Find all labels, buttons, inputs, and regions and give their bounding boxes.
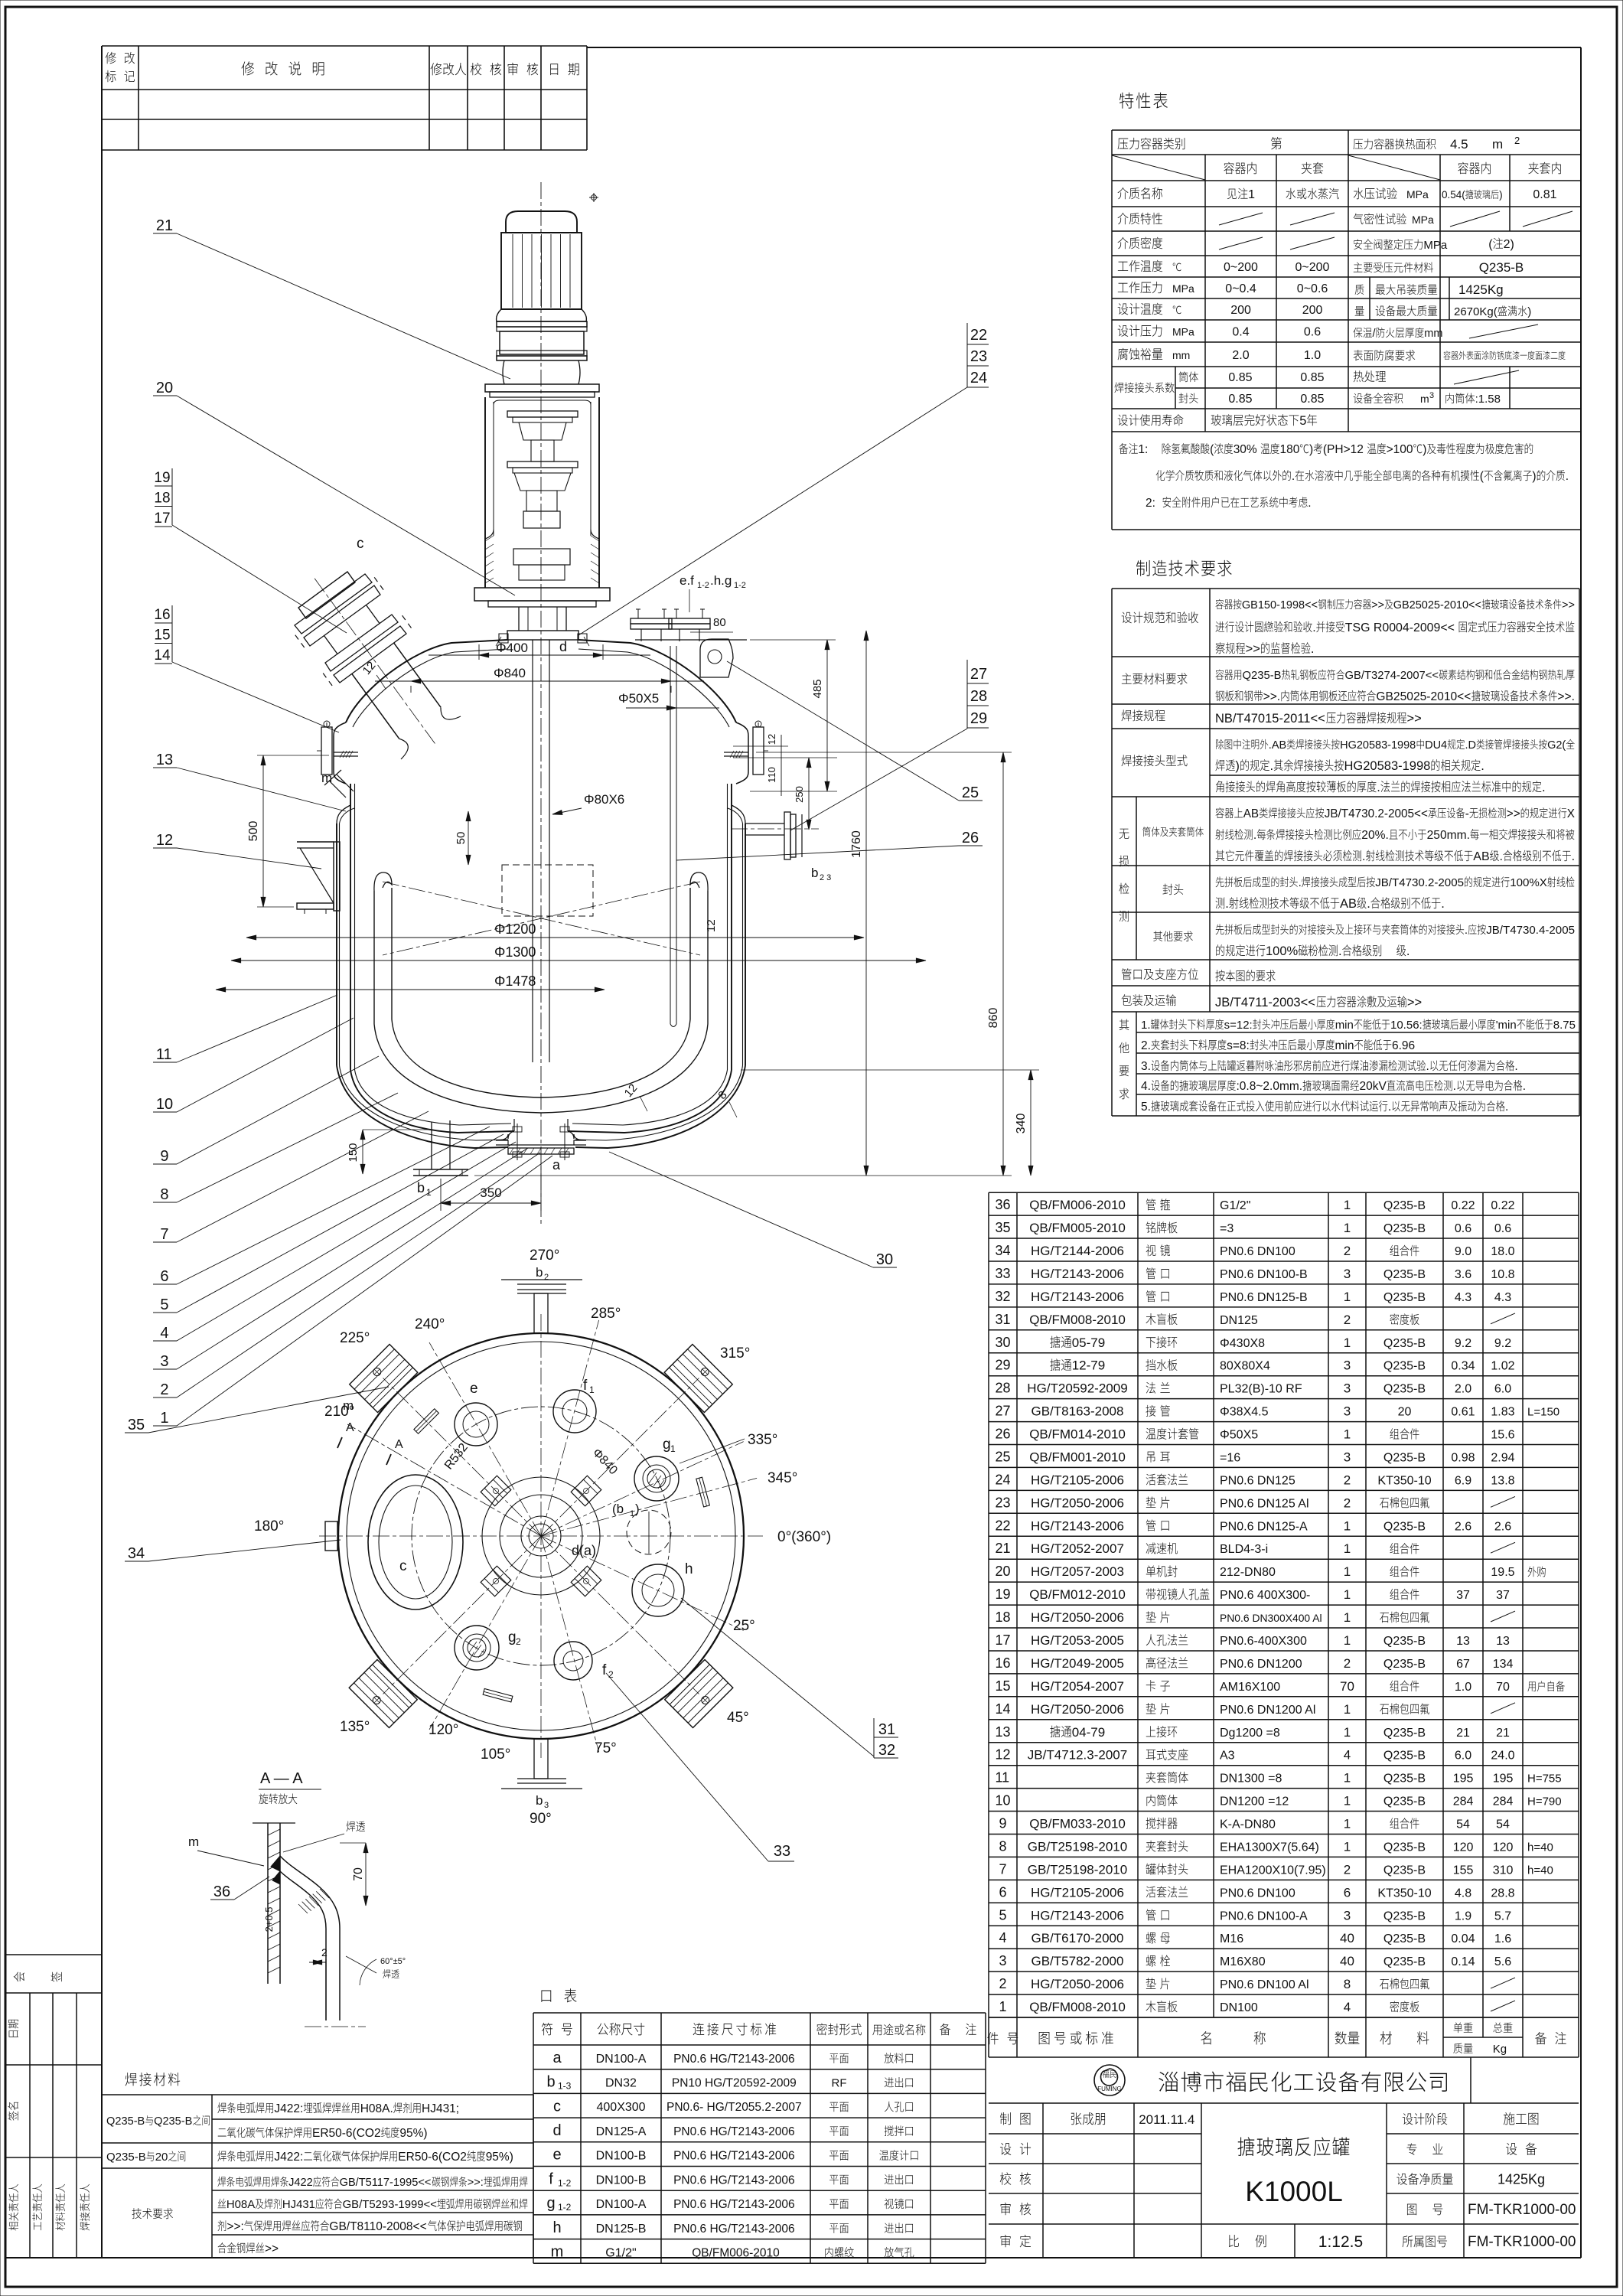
svg-text:1: 1 — [1344, 1633, 1351, 1648]
svg-text:13: 13 — [996, 1724, 1011, 1740]
svg-text:12: 12 — [156, 832, 173, 849]
svg-text:2.0: 2.0 — [1455, 1383, 1471, 1396]
svg-text:0~200: 0~200 — [1295, 261, 1330, 274]
svg-text:10.56:: 10.56: — [1390, 1019, 1423, 1032]
svg-text:315°: 315° — [720, 1345, 750, 1362]
svg-text:11: 11 — [996, 1770, 1010, 1786]
svg-text:>>.: >>. — [1263, 690, 1281, 703]
svg-text:0.22: 0.22 — [1451, 1199, 1475, 1212]
svg-text:1: 1 — [1344, 1702, 1351, 1717]
svg-text:.: . — [1523, 1080, 1526, 1093]
svg-text:J422: J422 — [288, 2177, 313, 2189]
svg-text:120: 120 — [1493, 1841, 1514, 1854]
svg-text:40: 40 — [1340, 1931, 1354, 1945]
svg-text:Q235-B: Q235-B — [1383, 1727, 1426, 1740]
svg-text:34: 34 — [996, 1243, 1011, 1258]
svg-text:26: 26 — [962, 830, 979, 846]
svg-text:345°: 345° — [768, 1470, 797, 1486]
svg-text:PN0.6 DN1200: PN0.6 DN1200 — [1220, 1658, 1302, 1671]
svg-text:PN0.6 DN100-A: PN0.6 DN100-A — [1220, 1910, 1308, 1923]
svg-text:0°(360°): 0°(360°) — [777, 1529, 831, 1545]
svg-text:3: 3 — [1344, 1381, 1351, 1396]
svg-text:6: 6 — [1344, 1885, 1351, 1900]
svg-text:>>: >> — [1507, 807, 1520, 820]
svg-text:3: 3 — [999, 1953, 1007, 1968]
svg-text:Φ1478: Φ1478 — [494, 974, 536, 989]
svg-text:6: 6 — [160, 1268, 168, 1285]
svg-text:HG/T2050-2006: HG/T2050-2006 — [1031, 1702, 1124, 1717]
svg-text:250mm.: 250mm. — [1427, 829, 1470, 842]
svg-text:250: 250 — [794, 786, 805, 803]
svg-text:MPa: MPa — [1423, 239, 1448, 252]
svg-text:20%.: 20%. — [1361, 829, 1389, 842]
svg-text:4.8: 4.8 — [1455, 1887, 1471, 1900]
svg-text:100%: 100% — [1266, 944, 1299, 958]
svg-text:PN0.6-400X300: PN0.6-400X300 — [1220, 1635, 1307, 1648]
svg-text:): ) — [1309, 443, 1313, 456]
svg-text:Q235-B: Q235-B — [1383, 1750, 1426, 1763]
svg-text:EHA1300X7(5.64): EHA1300X7(5.64) — [1220, 1841, 1319, 1854]
svg-text:PN0.6 DN100: PN0.6 DN100 — [1220, 1245, 1295, 1258]
svg-text:0~200: 0~200 — [1224, 261, 1258, 274]
svg-text:32: 32 — [996, 1289, 1011, 1304]
svg-text:Φ430X8: Φ430X8 — [1220, 1337, 1265, 1350]
svg-text:6.0: 6.0 — [1455, 1750, 1471, 1763]
svg-text:.: . — [1505, 1101, 1508, 1114]
svg-text:PN0.6 400X300-: PN0.6 400X300- — [1220, 1589, 1310, 1602]
svg-text:HG/T2050-2006: HG/T2050-2006 — [1031, 1495, 1124, 1510]
svg-text:MPa: MPa — [1172, 326, 1194, 338]
svg-text:11: 11 — [156, 1046, 172, 1063]
svg-text:1: 1 — [1344, 1587, 1351, 1602]
svg-text:c: c — [399, 1558, 407, 1574]
svg-text:mm: mm — [1424, 328, 1442, 340]
svg-text:212-DN80: 212-DN80 — [1220, 1566, 1276, 1579]
svg-text:DN100: DN100 — [1220, 2001, 1258, 2014]
svg-text:0~0.4: 0~0.4 — [1225, 282, 1256, 295]
svg-text:12-79: 12-79 — [1072, 1358, 1105, 1373]
svg-text:100%X: 100%X — [1510, 876, 1547, 889]
svg-text:PN0.6 DN125: PN0.6 DN125 — [1220, 1474, 1295, 1487]
svg-text:.: . — [1453, 1080, 1456, 1093]
svg-text:3: 3 — [1429, 391, 1434, 400]
svg-text:335°: 335° — [748, 1432, 777, 1448]
svg-text:15: 15 — [154, 628, 170, 644]
svg-text:.: . — [1426, 1060, 1429, 1073]
svg-text:(: ( — [1210, 443, 1214, 456]
svg-text:2: 2 — [1344, 1495, 1351, 1510]
svg-text:75°: 75° — [595, 1740, 617, 1756]
svg-text:AB: AB — [1243, 807, 1259, 820]
svg-text:21: 21 — [1496, 1727, 1510, 1740]
svg-text:JB/T4711-2003<<: JB/T4711-2003<< — [1215, 996, 1315, 1009]
svg-text:m: m — [1492, 137, 1503, 152]
svg-text:H08A: H08A — [227, 2199, 255, 2211]
svg-text:HG/T2053-2005: HG/T2053-2005 — [1031, 1633, 1124, 1648]
svg-text:2: 2 — [544, 1273, 549, 1282]
svg-text:PN0.6 HG/T2143-2006: PN0.6 HG/T2143-2006 — [673, 2198, 795, 2211]
svg-text:m: m — [321, 771, 332, 785]
svg-text:0.85: 0.85 — [1228, 371, 1252, 384]
svg-text:0.85: 0.85 — [1300, 393, 1324, 406]
svg-text:10: 10 — [996, 1793, 1011, 1808]
svg-text:HG/T2050-2006: HG/T2050-2006 — [1031, 1977, 1124, 1991]
svg-text:1: 1 — [1344, 1336, 1351, 1350]
svg-text:9.0: 9.0 — [1455, 1245, 1471, 1258]
svg-text:.: . — [1388, 1101, 1391, 1114]
svg-text:1.0: 1.0 — [1455, 1681, 1471, 1694]
svg-text:GB25025-2010<<: GB25025-2010<< — [1376, 690, 1471, 703]
svg-text:1: 1 — [1344, 1840, 1351, 1854]
svg-text:27: 27 — [970, 666, 987, 683]
svg-text:>>: >> — [1371, 599, 1384, 612]
svg-text:Φ50X5: Φ50X5 — [618, 691, 659, 706]
svg-text:h: h — [685, 1561, 693, 1577]
svg-text:40: 40 — [1340, 1954, 1354, 1968]
svg-text:EHA1200X10(7.95): EHA1200X10(7.95) — [1220, 1864, 1326, 1877]
svg-text:c: c — [357, 536, 364, 552]
svg-text:J422:: J422: — [274, 2151, 303, 2164]
svg-text:.: . — [1225, 897, 1229, 911]
svg-text:Q235-B: Q235-B — [1383, 1383, 1426, 1396]
svg-text:1-3: 1-3 — [558, 2081, 572, 2092]
svg-text:5: 5 — [160, 1296, 168, 1313]
svg-text:32: 32 — [878, 1742, 895, 1759]
svg-text:1: 1 — [1344, 1771, 1351, 1786]
svg-text:>>:: >>: — [468, 2177, 484, 2189]
svg-text:60°±5°: 60°±5° — [380, 1957, 406, 1966]
svg-text:23: 23 — [996, 1495, 1011, 1510]
svg-text:J422:: J422: — [274, 2102, 303, 2115]
svg-text:2: 2 — [1344, 1313, 1351, 1327]
svg-text:37: 37 — [1456, 1589, 1470, 1602]
svg-text:AM16X100: AM16X100 — [1220, 1681, 1280, 1694]
svg-text:0.04: 0.04 — [1451, 1932, 1475, 1945]
svg-text:7: 7 — [999, 1861, 1007, 1877]
svg-text:G1/2": G1/2" — [605, 2246, 636, 2259]
svg-text:Φ400: Φ400 — [496, 641, 528, 655]
svg-text:m: m — [188, 1835, 199, 1849]
svg-text:Q235-B: Q235-B — [1383, 1199, 1426, 1212]
svg-text:35: 35 — [996, 1220, 1011, 1235]
svg-text:28.8: 28.8 — [1491, 1887, 1514, 1900]
svg-text:2: 2 — [516, 1636, 521, 1647]
svg-text:PN0.6 HG/T2143-2006: PN0.6 HG/T2143-2006 — [673, 2125, 795, 2138]
svg-text:.: . — [1292, 470, 1295, 483]
svg-text:Q235-B: Q235-B — [1383, 1932, 1426, 1945]
svg-text:(: ( — [1488, 238, 1493, 251]
svg-text:1: 1 — [1344, 1518, 1351, 1533]
svg-text:a: a — [552, 1157, 561, 1172]
svg-text:21: 21 — [996, 1541, 1011, 1556]
svg-text:>>: >> — [1407, 712, 1422, 726]
svg-text:1: 1 — [1344, 1290, 1351, 1304]
svg-text:>>.: >>. — [1557, 690, 1575, 703]
svg-text:>>:: >>: — [227, 2220, 243, 2233]
svg-text:Q235-B: Q235-B — [1383, 1452, 1426, 1465]
svg-text:1: 1 — [1344, 1198, 1351, 1212]
svg-text:Φ80X6: Φ80X6 — [584, 792, 624, 807]
svg-text:MPa: MPa — [1172, 282, 1194, 295]
svg-text:QB/FM012-2010: QB/FM012-2010 — [1029, 1587, 1126, 1602]
svg-text:17: 17 — [996, 1632, 1011, 1648]
svg-text:Q235-B: Q235-B — [1383, 1337, 1426, 1350]
svg-text:b: b — [536, 1793, 543, 1808]
svg-text:1: 1 — [589, 1384, 595, 1395]
svg-text:RF: RF — [832, 2077, 847, 2090]
svg-text:240°: 240° — [415, 1316, 445, 1332]
svg-text:(: ( — [1480, 470, 1484, 483]
svg-text:45°: 45° — [727, 1710, 749, 1726]
svg-text:25: 25 — [996, 1450, 1011, 1465]
svg-text:5.7: 5.7 — [1494, 1910, 1511, 1923]
svg-text:PN0.6- HG/T2055.2-2007: PN0.6- HG/T2055.2-2007 — [666, 2101, 802, 2114]
svg-text:TSG R0004-2009<<: TSG R0004-2009<< — [1345, 621, 1455, 634]
svg-text:3: 3 — [1344, 1450, 1351, 1465]
svg-text:120°: 120° — [429, 1722, 458, 1738]
svg-text:195: 195 — [1493, 1773, 1514, 1786]
svg-text:KT350-10: KT350-10 — [1377, 1887, 1431, 1900]
svg-text:1760: 1760 — [850, 830, 863, 858]
svg-text:.: . — [1253, 829, 1256, 842]
svg-text:G2(: G2( — [1547, 739, 1566, 752]
svg-text:4: 4 — [1344, 1748, 1351, 1763]
svg-text:500: 500 — [247, 821, 260, 842]
svg-text:2+0.5: 2+0.5 — [263, 1906, 275, 1932]
svg-text:2: 2 — [1344, 1473, 1351, 1487]
svg-text:10.8: 10.8 — [1491, 1268, 1514, 1281]
svg-text:1: 1 — [160, 1410, 168, 1427]
svg-text:FM-TKR1000-00: FM-TKR1000-00 — [1468, 2234, 1576, 2250]
svg-text:70: 70 — [352, 1867, 365, 1881]
svg-text:GB/T25198-2010: GB/T25198-2010 — [1028, 1840, 1127, 1854]
svg-text:13: 13 — [1456, 1635, 1470, 1648]
svg-text:>>: >> — [1246, 642, 1260, 656]
svg-text:19: 19 — [996, 1587, 1011, 1602]
svg-text:JB/T4712.3-2007: JB/T4712.3-2007 — [1028, 1748, 1127, 1763]
svg-text:15: 15 — [996, 1678, 1011, 1694]
svg-text:M16X80: M16X80 — [1220, 1955, 1266, 1968]
svg-text:4.3: 4.3 — [1455, 1291, 1471, 1304]
svg-text:>>: >> — [1562, 599, 1575, 612]
svg-text:ER50-6(CO2: ER50-6(CO2 — [312, 2127, 381, 2140]
svg-text:DN125: DN125 — [1220, 1314, 1258, 1327]
svg-text:15.6: 15.6 — [1491, 1429, 1514, 1442]
svg-text:GB/T25198-2010: GB/T25198-2010 — [1028, 1862, 1127, 1877]
svg-text:8: 8 — [1344, 1977, 1351, 1991]
svg-text:DN32: DN32 — [605, 2077, 637, 2090]
svg-text:13: 13 — [1496, 1635, 1510, 1648]
svg-text:PN0.6 HG/T2143-2006: PN0.6 HG/T2143-2006 — [673, 2174, 795, 2187]
svg-text:): ) — [1235, 759, 1240, 773]
svg-text:25°: 25° — [733, 1618, 755, 1634]
svg-text:FM-TKR1000-00: FM-TKR1000-00 — [1468, 2202, 1576, 2218]
svg-text:Kg: Kg — [1493, 2043, 1507, 2056]
svg-text:PN0.6 HG/T2143-2006: PN0.6 HG/T2143-2006 — [673, 2223, 795, 2236]
svg-text:1: 1 — [1344, 1610, 1351, 1625]
svg-text:PN0.6 DN1200 Al: PN0.6 DN1200 Al — [1220, 1704, 1315, 1717]
svg-text:2: 2 — [160, 1381, 168, 1398]
svg-text:.: . — [1312, 621, 1315, 634]
svg-text:A: A — [395, 1438, 403, 1451]
svg-text:2): 2) — [1504, 238, 1514, 251]
svg-text:28: 28 — [970, 688, 987, 705]
svg-text:18: 18 — [154, 491, 170, 507]
svg-text:340: 340 — [1015, 1114, 1028, 1134]
svg-text:3: 3 — [1344, 1908, 1351, 1923]
svg-text:14: 14 — [154, 647, 171, 664]
svg-text:AB: AB — [1473, 850, 1489, 863]
svg-text:90°: 90° — [530, 1811, 552, 1827]
svg-text:2: 2 — [1514, 135, 1520, 146]
svg-text:4.: 4. — [1141, 1080, 1151, 1093]
svg-text:4.3: 4.3 — [1494, 1291, 1511, 1304]
svg-text:8.75: 8.75 — [1553, 1019, 1576, 1032]
svg-text:Q235-B: Q235-B — [1383, 1658, 1426, 1671]
svg-text:d: d — [552, 2122, 561, 2139]
svg-text:0.85: 0.85 — [1300, 371, 1324, 384]
svg-text:PN0.6 DN100: PN0.6 DN100 — [1220, 1887, 1295, 1900]
svg-text:PN0.6 DN100 Al: PN0.6 DN100 Al — [1220, 1978, 1309, 1991]
svg-text:DN100-B: DN100-B — [596, 2150, 647, 2163]
svg-text:1.6: 1.6 — [1494, 1932, 1511, 1945]
svg-text:HG/T2144-2006: HG/T2144-2006 — [1031, 1244, 1124, 1258]
svg-text:2: 2 — [321, 1946, 328, 1958]
svg-text:2.: 2. — [1141, 1039, 1151, 1052]
svg-text:6.9: 6.9 — [1455, 1474, 1471, 1487]
svg-text:9.2: 9.2 — [1455, 1337, 1471, 1350]
svg-text:g: g — [508, 1629, 517, 1645]
svg-text:HG/T2105-2006: HG/T2105-2006 — [1031, 1885, 1124, 1900]
svg-text:A: A — [346, 1421, 354, 1434]
svg-text:30%: 30% — [1234, 443, 1257, 456]
svg-text:67: 67 — [1456, 1658, 1470, 1671]
svg-text:HG/T2143-2006: HG/T2143-2006 — [1031, 1267, 1124, 1281]
svg-text:0.85: 0.85 — [1228, 393, 1252, 406]
svg-text:16: 16 — [154, 607, 170, 623]
svg-text:18.0: 18.0 — [1491, 1245, 1514, 1258]
svg-text:270°: 270° — [530, 1247, 559, 1264]
svg-text:3: 3 — [1344, 1404, 1351, 1419]
svg-text:1: 1 — [1344, 1427, 1351, 1442]
svg-text:Q235-B: Q235-B — [1383, 1773, 1426, 1786]
svg-text:Q235-B: Q235-B — [1243, 670, 1282, 682]
svg-text:HG/T2054-2007: HG/T2054-2007 — [1031, 1679, 1124, 1694]
svg-text:(PH>12: (PH>12 — [1323, 443, 1364, 456]
svg-text:GB/T6170-2000: GB/T6170-2000 — [1031, 1931, 1124, 1945]
svg-text:0~0.6: 0~0.6 — [1297, 282, 1328, 295]
svg-text:e: e — [470, 1381, 478, 1397]
svg-text:PL32(B)-10 RF: PL32(B)-10 RF — [1220, 1383, 1302, 1396]
svg-text:): ) — [1499, 189, 1503, 201]
svg-text:.: . — [1572, 850, 1575, 863]
svg-text:20: 20 — [996, 1564, 1011, 1579]
svg-text:.: . — [1406, 944, 1410, 958]
svg-text:=3: =3 — [1220, 1222, 1234, 1235]
svg-text:19.5: 19.5 — [1491, 1566, 1514, 1579]
svg-text:.: . — [1338, 944, 1342, 958]
svg-text:134: 134 — [1493, 1658, 1514, 1671]
svg-text:HJ431: HJ431 — [282, 2199, 315, 2211]
svg-text:GB/T3274-2007<<: GB/T3274-2007<< — [1345, 670, 1439, 682]
svg-text:34: 34 — [128, 1545, 145, 1562]
svg-text:.: . — [1308, 497, 1311, 510]
svg-text:1.0: 1.0 — [1304, 349, 1321, 362]
svg-text:1: 1 — [999, 1999, 1007, 2014]
svg-text:485: 485 — [811, 679, 824, 698]
svg-text:0.6: 0.6 — [1455, 1222, 1471, 1235]
svg-text:=16: =16 — [1220, 1452, 1240, 1465]
svg-text:20: 20 — [155, 2151, 168, 2164]
svg-text:1: 1 — [1248, 188, 1255, 201]
svg-text:4: 4 — [160, 1325, 168, 1342]
svg-text:35: 35 — [128, 1417, 145, 1433]
svg-text:HG/T2057-2003: HG/T2057-2003 — [1031, 1564, 1124, 1579]
svg-text:30: 30 — [876, 1251, 893, 1268]
svg-text::0.8~2.0mm.: :0.8~2.0mm. — [1237, 1080, 1303, 1093]
svg-text:G1/2": G1/2" — [1220, 1199, 1250, 1212]
svg-text:22: 22 — [970, 327, 987, 344]
svg-text:0.81: 0.81 — [1533, 188, 1556, 201]
svg-text:350: 350 — [480, 1186, 501, 1200]
svg-text:14: 14 — [996, 1701, 1011, 1717]
svg-text:284: 284 — [1453, 1795, 1474, 1808]
svg-text:0.6: 0.6 — [1494, 1222, 1511, 1235]
svg-text:b: b — [546, 2074, 555, 2091]
svg-text:Dg1200 =8: Dg1200 =8 — [1220, 1727, 1280, 1740]
svg-text:Φ1300: Φ1300 — [494, 944, 536, 960]
svg-text:1: 1 — [426, 1187, 432, 1198]
svg-text:QB/FM001-2010: QB/FM001-2010 — [1029, 1450, 1126, 1465]
svg-text:25: 25 — [962, 784, 979, 801]
svg-text:AB: AB — [1340, 897, 1357, 911]
svg-text:H=755: H=755 — [1527, 1773, 1562, 1786]
svg-text:2.6: 2.6 — [1455, 1520, 1471, 1533]
svg-text:GB/T8110-2008<<: GB/T8110-2008<< — [329, 2220, 426, 2233]
svg-text:30: 30 — [996, 1335, 1011, 1350]
svg-text:HG/T2050-2006: HG/T2050-2006 — [1031, 1610, 1124, 1625]
svg-text:21: 21 — [156, 217, 173, 234]
svg-text:0.61: 0.61 — [1451, 1406, 1475, 1419]
svg-text:QB/FM008-2010: QB/FM008-2010 — [1029, 1313, 1126, 1327]
svg-text:M16: M16 — [1220, 1932, 1243, 1945]
svg-text:6.0: 6.0 — [1494, 1383, 1511, 1396]
svg-text:Q235-B: Q235-B — [1383, 1841, 1426, 1854]
svg-text:2670Kg(: 2670Kg( — [1454, 305, 1498, 318]
svg-text:12: 12 — [996, 1747, 1011, 1763]
svg-text:Φ840: Φ840 — [494, 666, 526, 680]
svg-text:180°: 180° — [254, 1518, 284, 1534]
svg-text:Φ38X4.5: Φ38X4.5 — [1220, 1406, 1269, 1419]
svg-text:HG/T2143-2006: HG/T2143-2006 — [1031, 1908, 1124, 1923]
svg-text:31: 31 — [878, 1721, 895, 1738]
svg-text:HG/T20592-2009: HG/T20592-2009 — [1027, 1381, 1127, 1396]
svg-text:3: 3 — [544, 1801, 549, 1810]
svg-text:e.f: e.f — [680, 573, 694, 588]
svg-text:24: 24 — [996, 1472, 1011, 1487]
svg-text:1: 1 — [670, 1443, 676, 1454]
svg-text:): ) — [1423, 443, 1426, 456]
svg-text:): ) — [635, 1502, 640, 1516]
svg-text:Q235-B: Q235-B — [1383, 1864, 1426, 1877]
svg-text:(b: (b — [612, 1502, 624, 1516]
svg-text:PN0.6 DN125 Al: PN0.6 DN125 Al — [1220, 1497, 1309, 1510]
svg-text:2.0: 2.0 — [1232, 349, 1249, 362]
svg-text:27: 27 — [996, 1404, 1011, 1419]
svg-text:GB/T5117-1995<<: GB/T5117-1995<< — [340, 2177, 432, 2189]
svg-text:2: 2 — [999, 1976, 1007, 1991]
svg-text:2:: 2: — [1146, 497, 1155, 510]
